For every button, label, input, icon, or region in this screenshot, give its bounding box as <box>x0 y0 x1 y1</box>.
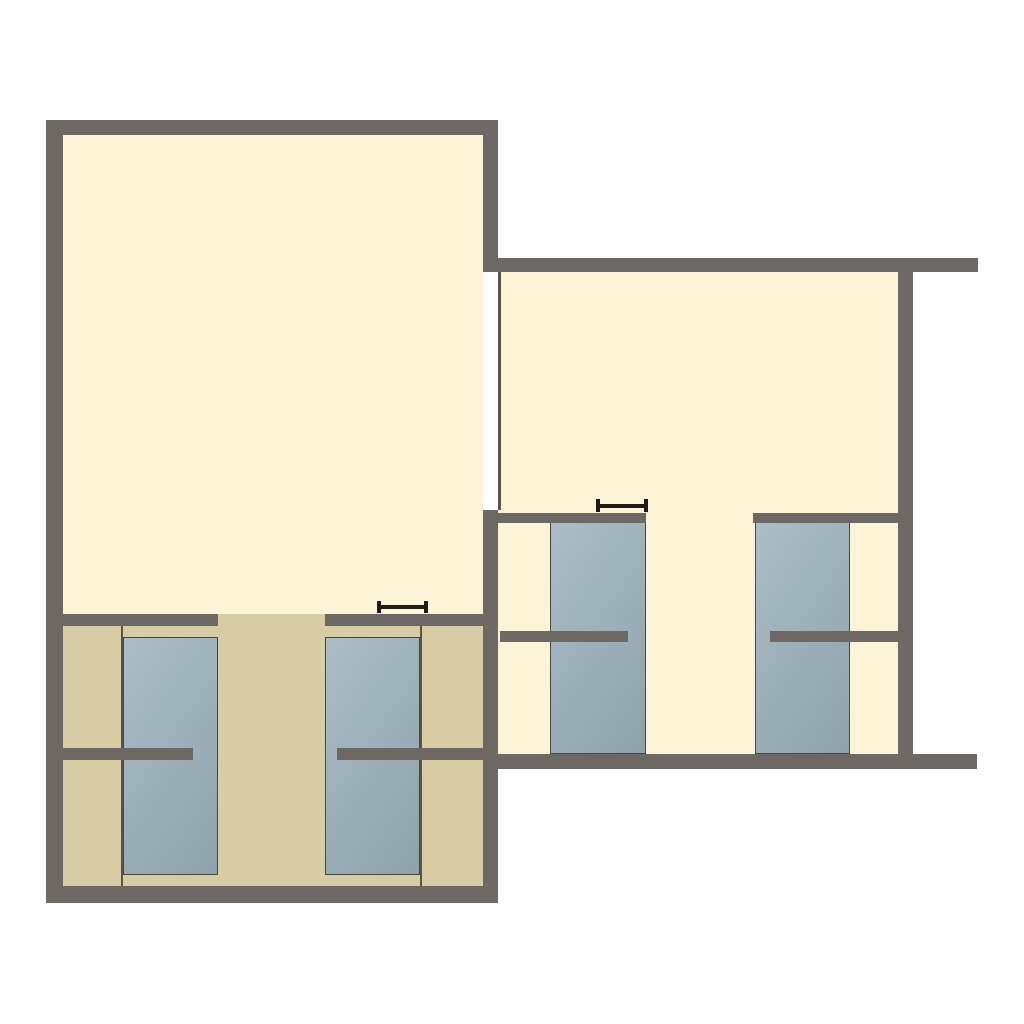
doorway-jamb-line <box>498 272 501 510</box>
outer-wall-bottom-left-room <box>46 886 498 903</box>
outer-wall-top-left-room <box>46 120 498 135</box>
right-room-bed-wall-left <box>498 513 646 523</box>
alcove-wall-left-segment <box>63 614 218 626</box>
right-room-stub-wall-right <box>770 631 898 642</box>
outer-wall-east <box>898 272 913 754</box>
left-room-floor <box>63 135 483 614</box>
alcove-stub-wall-right <box>337 748 483 760</box>
doorway-opening <box>483 272 498 510</box>
divider-wall-lower <box>483 510 498 886</box>
outer-wall-west <box>46 120 63 903</box>
floor-plan <box>0 0 1024 1024</box>
alcove-wall-right-segment <box>325 614 483 626</box>
opening-width-marker-right-room <box>596 499 648 512</box>
opening-width-marker-left-room <box>377 601 428 613</box>
outer-wall-top-right-room <box>483 258 978 272</box>
alcove-stub-wall-left <box>63 748 193 760</box>
right-room-stub-wall-left <box>500 631 628 642</box>
outer-wall-bottom-right-room <box>498 754 977 769</box>
divider-wall-upper <box>483 135 498 272</box>
right-room-bed-wall-right <box>753 513 898 523</box>
